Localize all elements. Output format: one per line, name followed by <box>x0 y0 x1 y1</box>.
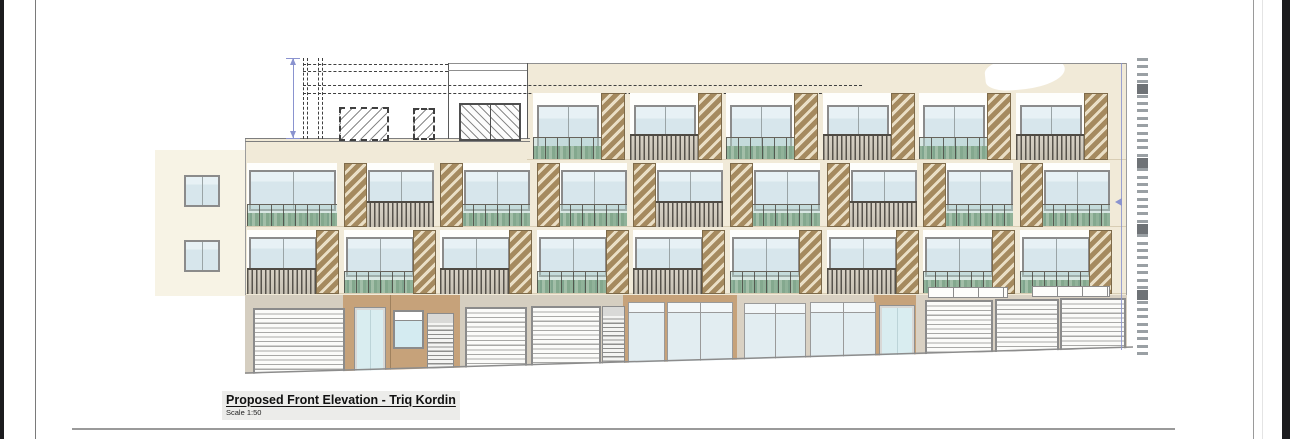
sheet-border-bottom <box>72 428 1175 430</box>
shopfront-glazing <box>628 302 665 370</box>
garage-door <box>465 307 527 378</box>
level-ruler-dash <box>1137 279 1148 282</box>
adjacent-building <box>155 150 245 296</box>
entrance-window <box>393 310 424 349</box>
roof-outline-dashed <box>303 71 448 72</box>
balcony-railing-plants <box>751 204 820 226</box>
roof-parapet-line <box>245 141 530 142</box>
level-ruler-dash <box>1137 345 1148 348</box>
level-ruler-dash <box>1137 242 1148 245</box>
level-ruler-dash <box>1137 146 1148 149</box>
dimension-arrow-down <box>290 131 296 138</box>
level-ruler-dash <box>1137 308 1148 311</box>
level-ruler-dash <box>1137 286 1148 289</box>
balcony-railing-plants <box>533 137 603 159</box>
adjacent-window <box>184 240 220 272</box>
shopfront-mullion <box>700 303 701 369</box>
transom-window <box>1032 286 1110 297</box>
balcony-railing-plants <box>558 204 627 226</box>
sheet-border-right-inner <box>1262 0 1263 439</box>
shopfront-glazing <box>667 302 733 370</box>
louver-door <box>602 306 625 370</box>
louver-screen <box>1089 230 1112 294</box>
rooflight-hatched-window <box>339 107 389 141</box>
level-ruler-dash <box>1137 190 1148 193</box>
louver-screen <box>344 163 367 227</box>
balcony-railing-plants <box>1041 204 1110 226</box>
louver-screen <box>633 163 656 227</box>
louver-screen <box>891 93 915 160</box>
balcony-railing-slats <box>827 268 898 294</box>
louver-screen <box>702 230 725 294</box>
level-ruler-dash <box>1137 220 1148 223</box>
roof-outline-dashed <box>303 64 448 65</box>
adjacent-window <box>184 175 220 207</box>
level-ruler-dash <box>1137 65 1148 68</box>
balcony-railing-plants <box>944 204 1013 226</box>
balcony-railing-slats <box>1016 134 1086 160</box>
level-ruler-dash <box>1137 124 1148 127</box>
level-ruler-dash <box>1137 256 1148 259</box>
dimension-arrow-left <box>1115 198 1122 206</box>
entrance-glass-door <box>880 306 914 368</box>
roof-outline-dashed <box>303 85 862 86</box>
louver-screen <box>606 230 629 294</box>
garage-door <box>925 300 993 360</box>
louver-screen <box>601 93 625 160</box>
screen-edge-right <box>1282 0 1290 439</box>
level-marker-square <box>1137 158 1148 168</box>
level-ruler-dash <box>1137 212 1148 215</box>
level-ruler-dash <box>1137 271 1148 274</box>
window-mullion <box>202 242 203 270</box>
louver-screen <box>440 163 463 227</box>
transom-window <box>928 287 1008 298</box>
louver-door <box>427 313 454 374</box>
level-ruler-dash <box>1137 109 1148 112</box>
balcony-railing-plants <box>726 137 796 159</box>
balcony-railing-plants <box>919 137 989 159</box>
level-ruler-dash <box>1137 95 1148 98</box>
screen-edge-left <box>0 0 4 439</box>
dimension-line-right <box>1121 63 1122 350</box>
dimension-tick <box>286 138 300 139</box>
level-marker-square <box>1137 224 1148 234</box>
balcony-railing-slats <box>848 201 917 227</box>
title-block: Proposed Front Elevation - Triq Kordin S… <box>222 391 460 420</box>
garage-door <box>253 308 345 380</box>
shopfront-glazing <box>810 302 876 364</box>
louver-screen <box>923 163 946 227</box>
parapet-top-line <box>448 63 1127 64</box>
dimension-line-left <box>293 58 294 138</box>
roof-structure-line <box>448 70 527 71</box>
balcony-railing-plants <box>537 271 608 293</box>
shopfront-glazing <box>744 303 806 367</box>
door-mullion <box>897 308 898 366</box>
shopfront-mullion <box>775 304 776 366</box>
garage-door <box>531 306 601 376</box>
louver-screen <box>896 230 919 294</box>
balcony-railing-slats <box>630 134 700 160</box>
sheet-border-left <box>35 0 36 439</box>
shopfront-mullion <box>843 303 844 363</box>
window-mullion <box>766 239 767 275</box>
stairwell-hatched-window <box>459 103 521 141</box>
level-ruler-dash <box>1137 323 1148 326</box>
garage-door <box>995 299 1059 357</box>
louver-screen <box>987 93 1011 160</box>
louver-screen <box>799 230 822 294</box>
louver-screen <box>794 93 818 160</box>
drawing-sheet-viewport: Proposed Front Elevation - Triq Kordin S… <box>0 0 1290 439</box>
level-ruler-dash <box>1137 315 1148 318</box>
roof-structure-wall <box>448 63 449 139</box>
level-ruler-dash <box>1137 301 1148 304</box>
level-ruler-dash <box>1137 132 1148 135</box>
louver-screen <box>1020 163 1043 227</box>
window-mullion <box>573 239 574 275</box>
drawing-title: Proposed Front Elevation - Triq Kordin <box>226 393 456 407</box>
window-mullion <box>1056 239 1057 275</box>
level-marker-square <box>1137 290 1148 300</box>
level-ruler-dash <box>1137 102 1148 105</box>
level-ruler-dash <box>1137 198 1148 201</box>
level-ruler-dash <box>1137 58 1148 61</box>
louver-screen <box>509 230 532 294</box>
dimension-arrow-up <box>290 58 296 65</box>
balcony-railing-slats <box>823 134 893 160</box>
level-ruler-dash <box>1137 330 1148 333</box>
balcony-railing-slats <box>440 268 511 294</box>
level-ruler-dash <box>1137 117 1148 120</box>
level-ruler-dash <box>1137 183 1148 186</box>
balcony-railing-plants <box>344 271 415 293</box>
window-mullion <box>202 177 203 205</box>
garage-door <box>1060 298 1126 354</box>
level-ruler-dash <box>1137 139 1148 142</box>
louver-screen <box>537 163 560 227</box>
louver-screen <box>316 230 339 294</box>
balcony-railing-plants <box>247 204 337 226</box>
balcony-railing-plants <box>461 204 530 226</box>
entrance-glass-door <box>355 308 385 376</box>
window-mullion <box>959 239 960 275</box>
level-ruler-dash <box>1137 168 1148 171</box>
elevation-drawing <box>0 0 1290 439</box>
balcony-railing-slats <box>654 201 723 227</box>
louver-screen <box>992 230 1015 294</box>
level-ruler-dash <box>1137 264 1148 267</box>
level-ruler-dash <box>1137 80 1148 83</box>
roof-structure-wall <box>527 63 528 139</box>
balcony-railing-slats <box>633 268 704 294</box>
level-ruler-dash <box>1137 154 1148 157</box>
balcony-railing-slats <box>365 201 434 227</box>
level-ruler-dash <box>1137 176 1148 179</box>
level-ruler-dash <box>1137 337 1148 340</box>
balcony-railing-slats <box>247 268 318 294</box>
level-ruler-dash <box>1137 73 1148 76</box>
louver-screen <box>730 163 753 227</box>
level-ruler-dash <box>1137 234 1148 237</box>
window-mullion <box>490 105 491 139</box>
window-mullion <box>380 239 381 275</box>
level-marker-square <box>1137 84 1148 94</box>
level-ruler-dash <box>1137 205 1148 208</box>
louver-screen <box>698 93 722 160</box>
balcony-railing-plants <box>730 271 801 293</box>
louver-screen <box>1084 93 1108 160</box>
entrance-wall-joint <box>390 295 391 373</box>
drawing-scale-label: Scale 1:50 <box>226 408 456 417</box>
louver-screen <box>827 163 850 227</box>
level-ruler-dash <box>1137 249 1148 252</box>
sheet-border-right <box>1253 0 1254 439</box>
level-ruler-dash <box>1137 352 1148 355</box>
louver-screen <box>413 230 436 294</box>
rooflight-hatched-window <box>413 108 435 140</box>
door-mullion <box>370 310 371 374</box>
